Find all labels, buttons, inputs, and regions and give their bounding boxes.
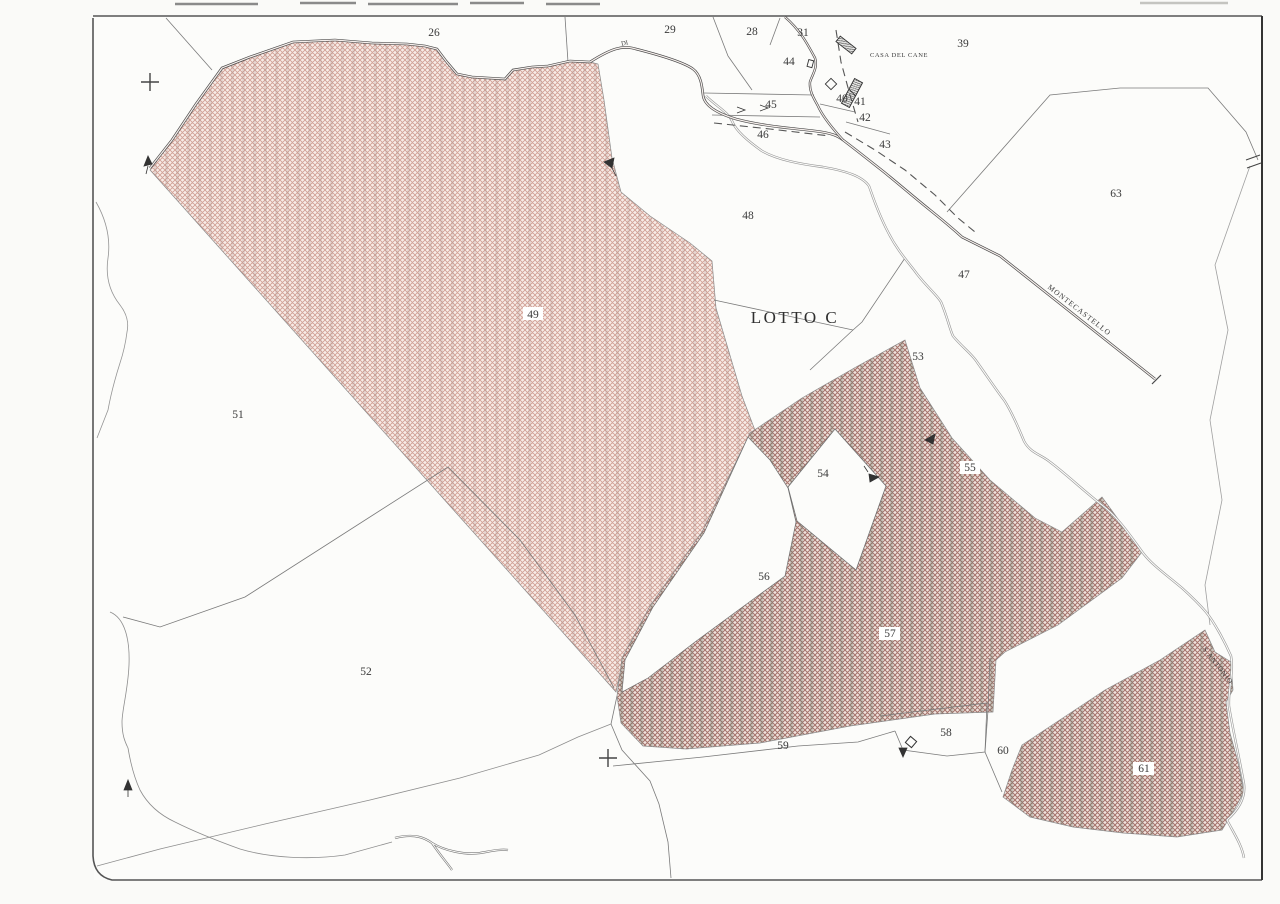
parcel-label-55: 55 <box>964 462 976 474</box>
parcel-label-56: 56 <box>758 571 770 583</box>
zone-title: LOTTO C <box>751 308 840 327</box>
parcel-label-39: 39 <box>957 38 969 50</box>
parcel-label-52: 52 <box>360 666 372 678</box>
parcel-label-42: 42 <box>859 112 871 124</box>
parcel-label-29: 29 <box>664 24 676 36</box>
parcel-label-48: 48 <box>742 210 754 222</box>
parcel-label-31: 31 <box>797 27 809 39</box>
parcel-label-40: 40 <box>836 93 848 105</box>
parcel-label-45: 45 <box>765 99 777 111</box>
parcel-label-43: 43 <box>879 139 891 151</box>
parcel-label-46: 46 <box>757 129 769 141</box>
parcel-label-59: 59 <box>777 740 789 752</box>
parcel-label-58: 58 <box>940 727 952 739</box>
parcel-label-49: 49 <box>527 309 539 321</box>
place-label-casa-del-cane: CASA DEL CANE <box>870 52 928 59</box>
map-scan: 26 29 28 31 39 44 40 41 42 45 46 43 63 4… <box>0 0 1280 904</box>
parcel-label-26: 26 <box>428 27 440 39</box>
cadastral-map-canvas: 26 29 28 31 39 44 40 41 42 45 46 43 63 4… <box>0 0 1280 904</box>
parcel-label-44: 44 <box>783 56 795 68</box>
road-label-di: DI <box>621 39 629 47</box>
parcel-label-53: 53 <box>912 351 924 363</box>
parcel-label-57: 57 <box>884 628 896 640</box>
parcel-label-60: 60 <box>997 745 1009 757</box>
parcel-label-47: 47 <box>958 269 970 281</box>
parcel-label-28: 28 <box>746 26 758 38</box>
parcel-label-51: 51 <box>232 409 244 421</box>
parcel-label-63: 63 <box>1110 188 1122 200</box>
parcel-label-61: 61 <box>1138 763 1150 775</box>
parcel-label-41: 41 <box>854 96 866 108</box>
parcel-label-54: 54 <box>817 468 829 480</box>
